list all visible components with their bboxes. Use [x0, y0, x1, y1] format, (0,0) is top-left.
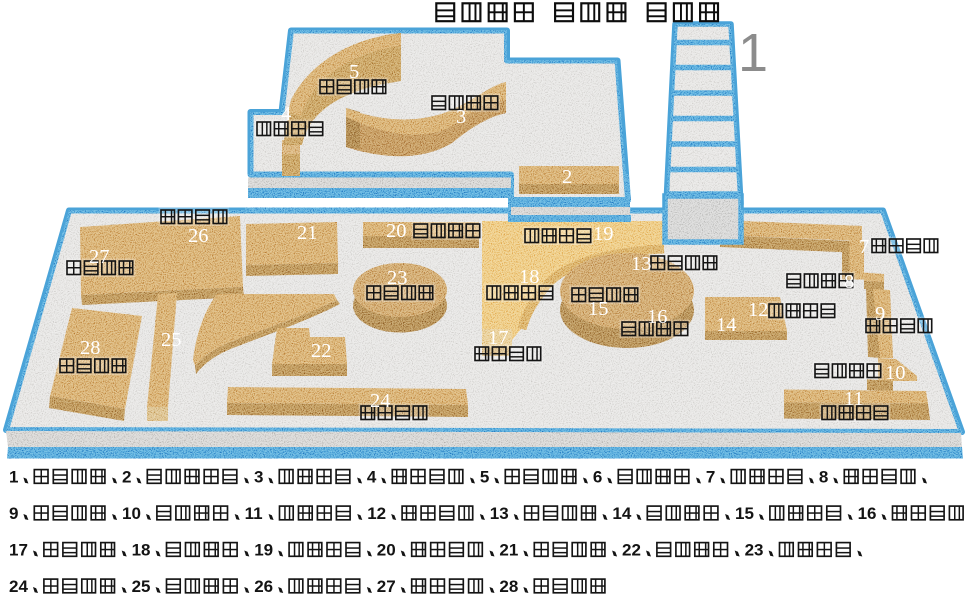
svg-text:15: 15: [588, 298, 609, 320]
svg-text:27: 27: [377, 577, 396, 596]
svg-text:18: 18: [519, 266, 540, 288]
svg-text:10: 10: [122, 504, 141, 523]
svg-text:24: 24: [370, 390, 391, 412]
svg-text:12: 12: [748, 299, 769, 321]
svg-text:4: 4: [281, 103, 291, 125]
svg-text:25: 25: [132, 577, 151, 596]
svg-text:9: 9: [875, 303, 885, 325]
svg-text:4: 4: [367, 468, 377, 487]
svg-text:2: 2: [122, 468, 131, 487]
svg-text:12: 12: [367, 504, 386, 523]
svg-text:23: 23: [387, 267, 408, 289]
svg-text:2: 2: [562, 166, 572, 188]
svg-text:17: 17: [488, 327, 509, 349]
svg-text:1: 1: [9, 468, 18, 487]
svg-text:15: 15: [735, 504, 754, 523]
svg-text:21: 21: [499, 541, 518, 560]
svg-text:13: 13: [490, 504, 509, 523]
svg-text:24: 24: [9, 577, 28, 596]
svg-text:16: 16: [647, 306, 668, 328]
svg-text:11: 11: [245, 504, 263, 523]
svg-text:20: 20: [386, 220, 407, 242]
svg-text:28: 28: [80, 337, 101, 359]
svg-text:3: 3: [456, 106, 466, 128]
svg-text:27: 27: [89, 246, 110, 268]
svg-text:13: 13: [631, 253, 652, 275]
svg-text:26: 26: [254, 577, 273, 596]
svg-text:8: 8: [844, 271, 854, 293]
svg-text:21: 21: [297, 222, 318, 244]
svg-text:17: 17: [9, 541, 28, 560]
svg-text:6: 6: [593, 468, 602, 487]
svg-text:9: 9: [9, 504, 18, 523]
svg-text:14: 14: [612, 504, 631, 523]
svg-text:19: 19: [254, 541, 273, 560]
svg-text:3: 3: [254, 468, 263, 487]
svg-text:18: 18: [132, 541, 151, 560]
svg-text:16: 16: [858, 504, 877, 523]
svg-text:20: 20: [377, 541, 396, 560]
svg-text:28: 28: [499, 577, 518, 596]
svg-text:19: 19: [593, 223, 614, 245]
svg-text:11: 11: [844, 388, 864, 410]
svg-text:1: 1: [738, 23, 768, 83]
svg-text:8: 8: [819, 468, 828, 487]
svg-text:26: 26: [188, 225, 209, 247]
svg-text:14: 14: [716, 314, 737, 336]
svg-text:23: 23: [745, 541, 764, 560]
svg-text:22: 22: [311, 340, 332, 362]
svg-text:22: 22: [622, 541, 641, 560]
svg-text:5: 5: [480, 468, 489, 487]
svg-text:7: 7: [859, 236, 869, 258]
svg-text:10: 10: [885, 362, 906, 384]
svg-text:25: 25: [161, 329, 182, 351]
svg-text:7: 7: [706, 468, 715, 487]
svg-text:5: 5: [349, 61, 359, 83]
